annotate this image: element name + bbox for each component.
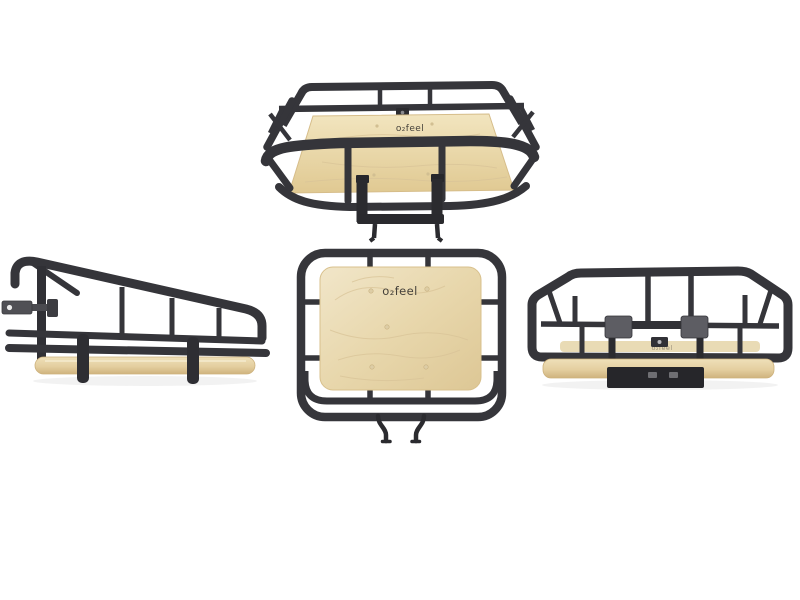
side-mid-rail [9,333,262,341]
wood-base-side [35,357,255,374]
brand-logo-top-view: o₂feel [382,284,417,298]
view-top-down: o₂feel [301,250,502,442]
product-photo-canvas: o₂feel [0,0,800,600]
rear-side-struts [549,290,771,324]
ground-shadow [33,376,257,386]
mount-clamp-right [681,316,708,338]
rear-top-rim [532,271,788,312]
basket-four-view-illustration: o₂feel [0,0,800,600]
side-mount-tab [2,299,58,317]
wood-panel-top: o₂feel [320,267,481,390]
view-side-profile [2,261,266,386]
view-rear: o₂feel [532,271,788,390]
wood-floor-perspective: o₂feel [289,114,514,193]
mount-clamp-left [605,316,632,338]
tube-joint [77,344,89,356]
side-bottom-rail [9,348,266,353]
support-post-front [77,334,89,383]
support-post-rear [187,337,199,384]
bottom-bracket-plate [607,367,704,388]
clamp-crossbar [632,321,681,329]
tube-joint [187,346,199,358]
brand-logo-front-view: o₂feel [396,124,424,134]
view-front-perspective: o₂feel [266,85,536,241]
clamp-tab-hole [658,340,662,344]
